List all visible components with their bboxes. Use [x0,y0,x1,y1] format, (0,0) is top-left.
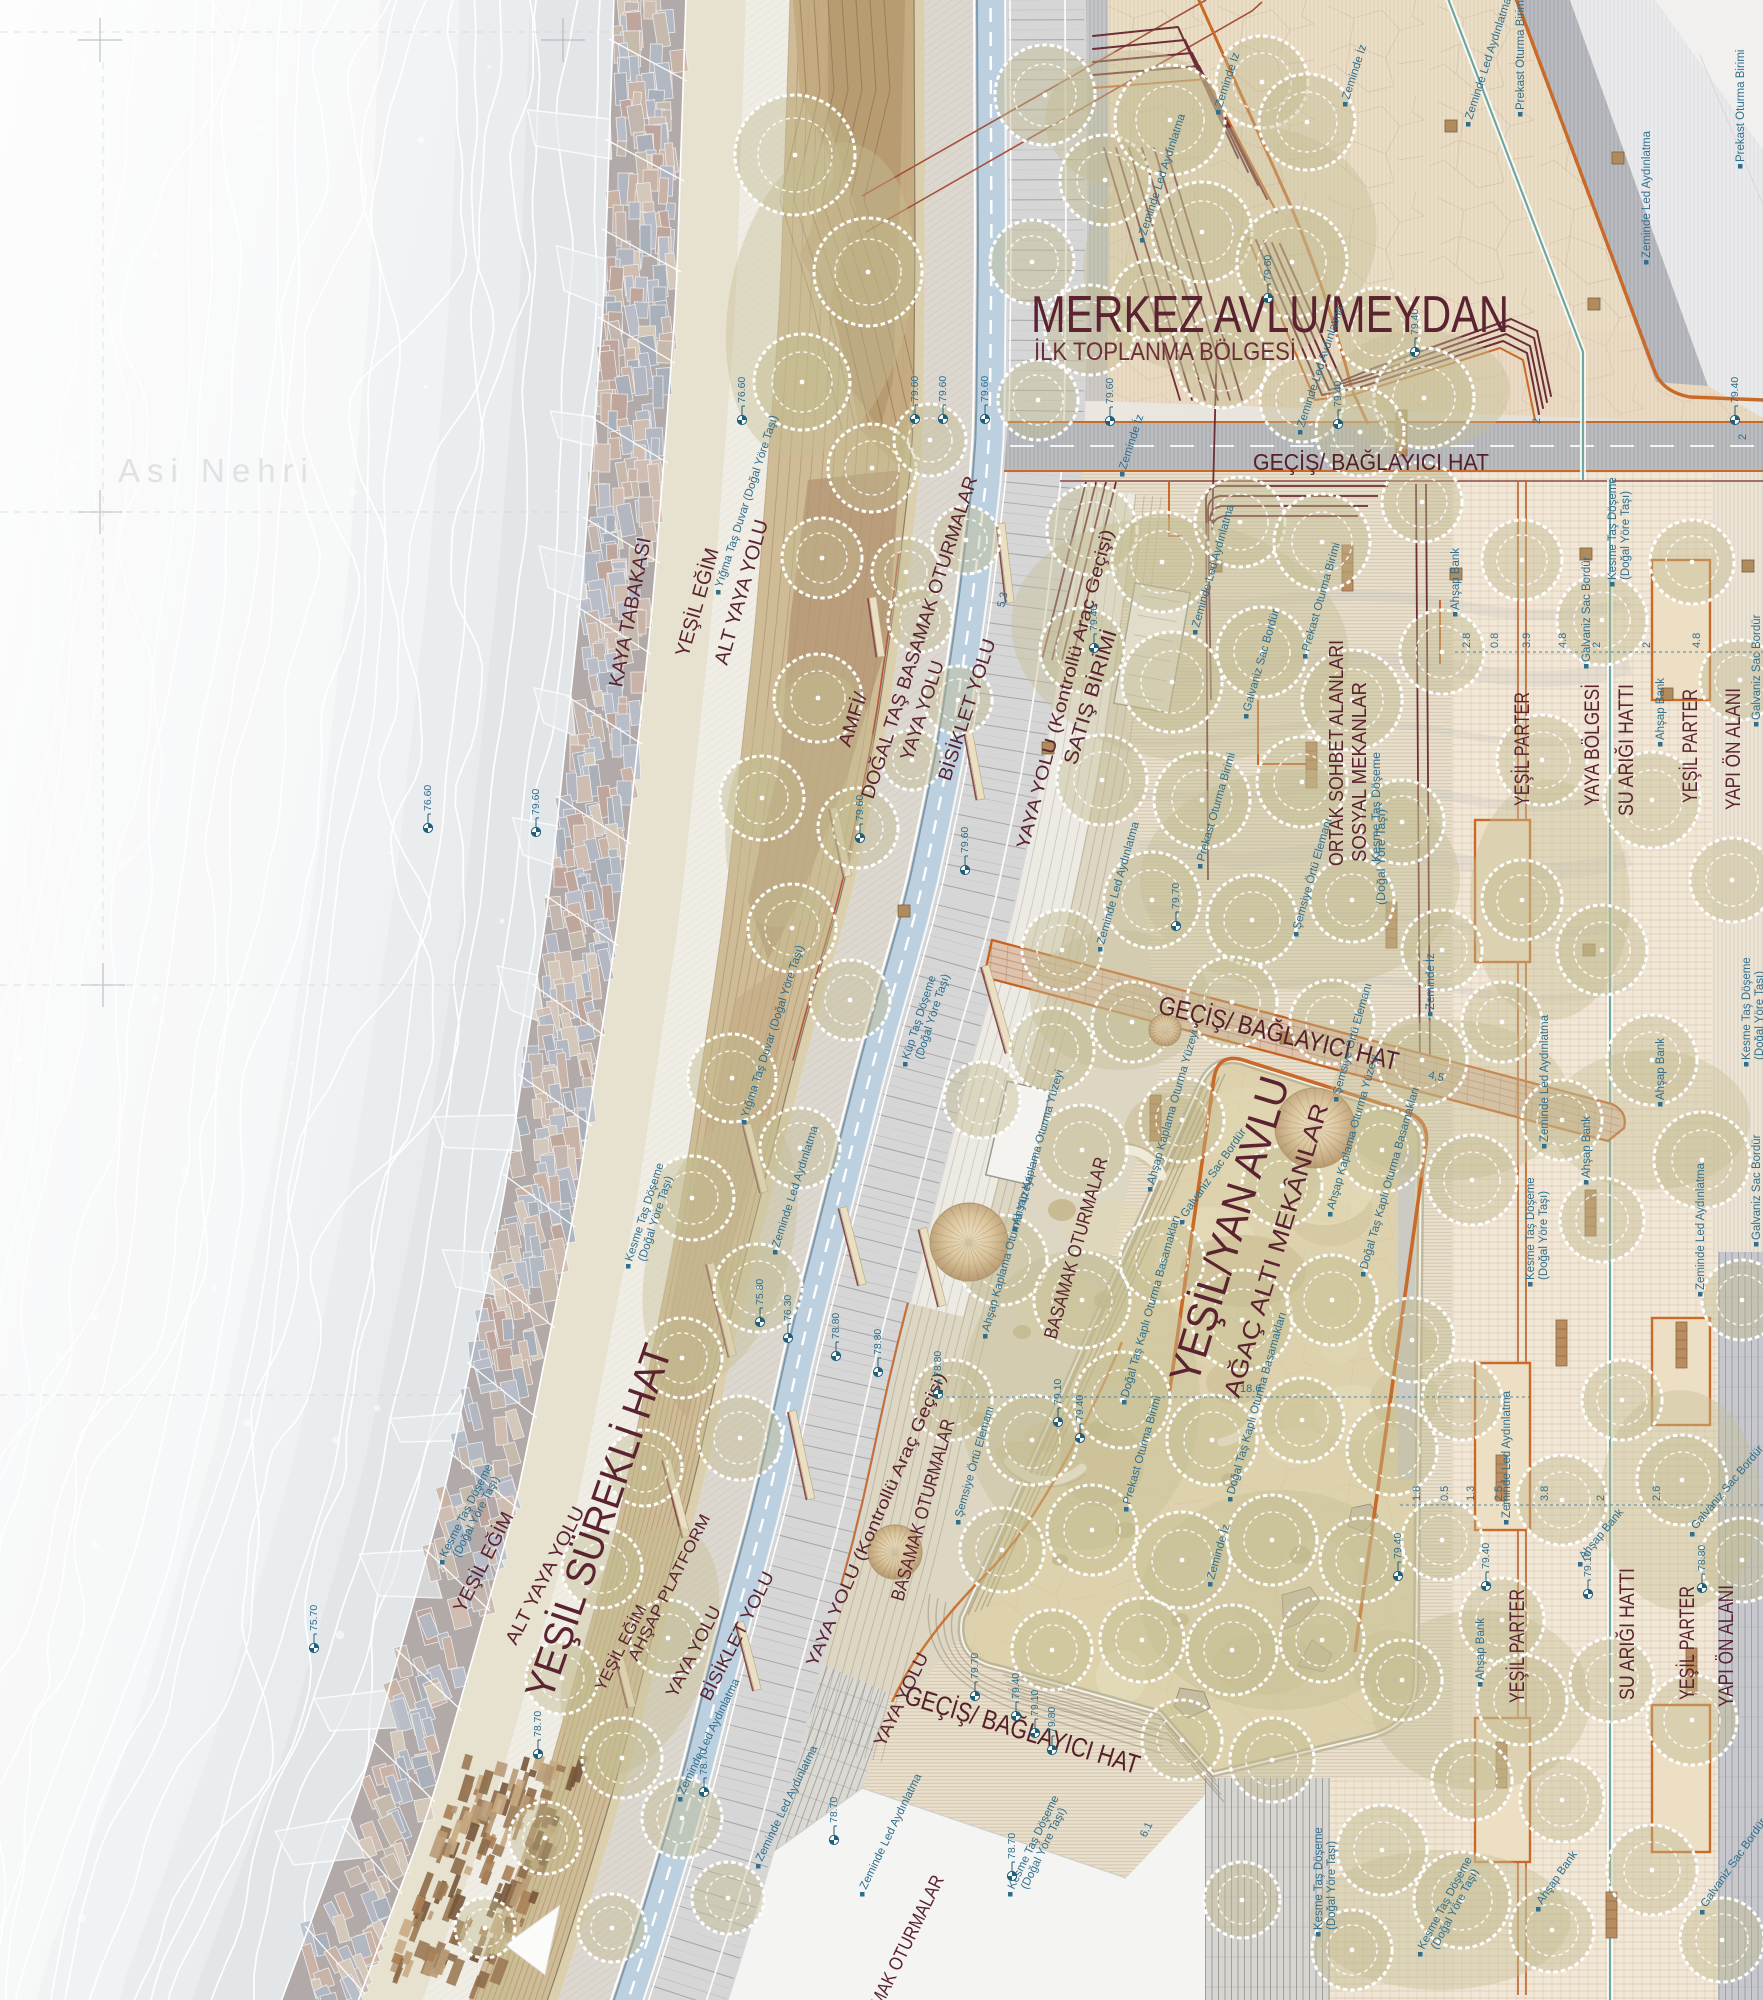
svg-text:75.80: 75.80 [754,1279,766,1305]
svg-text:0.8: 0.8 [1489,633,1501,648]
svg-text:79.80: 79.80 [1046,1707,1058,1733]
svg-text:Kesme Taş Döşeme: Kesme Taş Döşeme [1607,477,1619,580]
svg-text:4.8: 4.8 [1557,633,1569,648]
svg-text:Zeminde Led Aydınlatma: Zeminde Led Aydınlatma [1695,1162,1707,1290]
svg-text:Zeminde Led Aydınlatma: Zeminde Led Aydınlatma [1641,130,1653,258]
svg-text:79.10: 79.10 [1029,1690,1041,1716]
svg-text:Ahşap Bank: Ahşap Bank [1655,1038,1667,1100]
svg-text:(Doğal Yöre Taşı): (Doğal Yöre Taşı) [1326,1841,1338,1930]
svg-text:79.10: 79.10 [1582,1551,1594,1577]
svg-text:78.80: 78.80 [1696,1545,1708,1571]
svg-text:2: 2 [1641,642,1653,648]
svg-text:79.60: 79.60 [1262,255,1274,281]
svg-text:GEÇİŞ/ BAĞLAYICI HAT: GEÇİŞ/ BAĞLAYICI HAT [1253,449,1489,475]
svg-text:79.40: 79.40 [1332,381,1344,407]
svg-text:Kesme Taş Döşeme: Kesme Taş Döşeme [1369,752,1383,862]
svg-text:3.8: 3.8 [1539,1486,1551,1501]
svg-text:79.40: 79.40 [1729,377,1741,403]
svg-text:Ahşap Bank: Ahşap Bank [1581,1116,1593,1178]
svg-text:Galvaniz Sac Bordür: Galvaniz Sac Bordür [1751,1134,1763,1240]
svg-text:YAPI ÖN ALANI: YAPI ÖN ALANI [1722,688,1745,810]
svg-text:İLK TOPLANMA BÖLGESİ: İLK TOPLANMA BÖLGESİ [1034,337,1296,366]
svg-text:Kesme Taş Döşeme: Kesme Taş Döşeme [1741,957,1753,1060]
svg-text:Zeminde Led Aydınlatma: Zeminde Led Aydınlatma [1539,1014,1551,1142]
svg-text:Prekast Oturma Birimi: Prekast Oturma Birimi [1515,0,1527,110]
svg-text:79.60: 79.60 [937,376,949,402]
svg-text:2.5: 2.5 [1493,1486,1505,1501]
svg-text:YEŞİL PARTER: YEŞİL PARTER [1679,689,1702,803]
svg-text:(Doğal Yöre Taşı): (Doğal Yöre Taşı) [1620,491,1632,580]
svg-text:YAPI ÖN ALANI: YAPI ÖN ALANI [1715,1585,1738,1707]
svg-text:2: 2 [1591,642,1603,648]
svg-text:Zeminde İz: Zeminde İz [1424,953,1437,1010]
svg-text:79.40: 79.40 [1074,1395,1086,1421]
svg-text:79.70: 79.70 [969,1653,981,1679]
svg-text:Asi Nehri: Asi Nehri [118,452,315,489]
svg-text:79.60: 79.60 [979,376,991,402]
svg-text:79.70: 79.70 [1170,883,1182,909]
svg-text:79.10: 79.10 [1052,1379,1064,1405]
svg-text:Galvaniz Sac Bordür: Galvaniz Sac Bordür [1751,614,1763,720]
svg-text:78.70: 78.70 [698,1749,710,1775]
svg-text:2.8: 2.8 [1461,633,1473,648]
svg-text:78.70: 78.70 [828,1797,840,1823]
svg-text:YAYA BÖLGESİ: YAYA BÖLGESİ [1581,684,1604,806]
svg-text:18.6: 18.6 [1240,1383,1261,1395]
svg-text:79.60: 79.60 [854,795,866,821]
svg-text:Kesme Taş Döşeme: Kesme Taş Döşeme [1525,1177,1537,1280]
svg-text:Ahşap Bank: Ahşap Bank [1655,678,1667,740]
svg-text:78.70: 78.70 [1006,1833,1018,1859]
svg-text:YEŞİL PARTER: YEŞİL PARTER [1511,692,1534,806]
svg-text:SU ARIĞI HATTI: SU ARIĞI HATTI [1615,684,1638,816]
svg-text:SOSYAL MEKANLAR: SOSYAL MEKANLAR [1349,682,1371,862]
svg-text:2.6: 2.6 [1651,1486,1663,1501]
svg-text:76.60: 76.60 [422,785,434,811]
svg-text:79.40: 79.40 [1480,1543,1492,1569]
svg-text:79.40: 79.40 [1010,1673,1022,1699]
svg-text:Prekast Oturma Birimi: Prekast Oturma Birimi [1735,50,1747,162]
svg-text:2: 2 [1531,418,1543,424]
svg-text:79.40: 79.40 [1392,1533,1404,1559]
svg-text:76.60: 76.60 [736,377,748,403]
svg-text:(Doğal Yöre Taşı): (Doğal Yöre Taşı) [1538,1191,1550,1280]
svg-text:78.80: 78.80 [872,1329,884,1355]
svg-text:75.70: 75.70 [308,1605,320,1631]
svg-text:1.3: 1.3 [1465,1486,1477,1501]
svg-text:2: 2 [1737,434,1749,440]
svg-text:79.60: 79.60 [959,827,971,853]
svg-text:78.80: 78.80 [830,1313,842,1339]
svg-text:79.40: 79.40 [1409,309,1421,335]
svg-text:Kesme Taş Döşeme: Kesme Taş Döşeme [1313,1827,1325,1930]
svg-text:Ahşap Bank: Ahşap Bank [1475,1618,1487,1680]
svg-text:0.5: 0.5 [1439,1486,1451,1501]
svg-text:Ahşap Bank: Ahşap Bank [1450,548,1462,610]
svg-text:YEŞİL PARTER: YEŞİL PARTER [1506,1589,1529,1703]
svg-text:2: 2 [1595,1495,1607,1501]
svg-text:76.30: 76.30 [782,1295,794,1321]
svg-text:79.60: 79.60 [1104,378,1116,404]
svg-text:3.9: 3.9 [1521,633,1533,648]
svg-text:78.80: 78.80 [932,1351,944,1377]
svg-text:YEŞİL PARTER: YEŞİL PARTER [1676,1586,1699,1700]
svg-text:4.8: 4.8 [1691,633,1703,648]
svg-text:SU ARIĞI HATTI: SU ARIĞI HATTI [1616,1568,1639,1700]
svg-text:(Doğal Yöre Taşı): (Doğal Yöre Taşı) [1754,971,1763,1060]
svg-text:1.8: 1.8 [1411,1486,1423,1501]
svg-text:79.60: 79.60 [530,789,542,815]
svg-text:79.60: 79.60 [909,376,921,402]
svg-text:78.70: 78.70 [532,1711,544,1737]
svg-text:79.40: 79.40 [1088,605,1100,631]
